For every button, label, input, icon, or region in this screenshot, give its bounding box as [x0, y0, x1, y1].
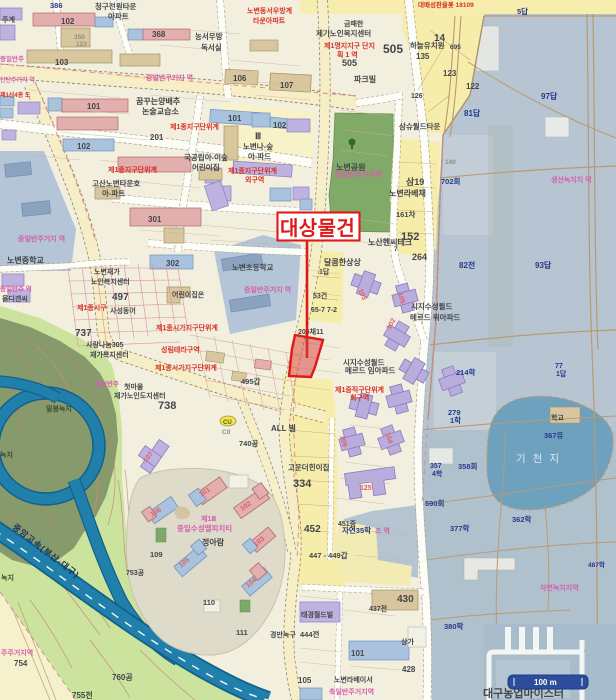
- svg-text:755전: 755전: [72, 690, 93, 700]
- svg-text:성림테라구역: 성림테라구역: [161, 345, 200, 354]
- svg-text:444전: 444전: [300, 629, 320, 639]
- svg-text:111: 111: [236, 628, 248, 637]
- svg-text:14: 14: [434, 33, 446, 44]
- svg-text:102: 102: [77, 142, 91, 151]
- svg-text:산단주거지 역: 산단주거지 역: [0, 76, 35, 84]
- svg-text:중일반주거지 역: 중일반주거지 역: [18, 234, 65, 243]
- svg-text:고산노변타운호: 고산노변타운호: [92, 178, 140, 188]
- svg-text:파크빌: 파크빌: [354, 74, 376, 84]
- svg-text:135: 135: [416, 52, 430, 61]
- svg-text:101: 101: [228, 114, 242, 123]
- svg-text:1학: 1학: [450, 415, 461, 425]
- svg-text:357: 357: [430, 463, 442, 470]
- svg-text:대상물건: 대상물건: [280, 217, 355, 240]
- svg-text:생산녹지지 역: 생산녹지지 역: [551, 175, 592, 184]
- svg-text:청구전원타운: 청구전원타운: [95, 1, 136, 11]
- svg-text:자연녹지지역: 자연녹지지역: [540, 583, 579, 592]
- svg-text:꿈꾸는양배추: 꿈꾸는양배추: [136, 96, 181, 106]
- svg-text:올디갠씨: 올디갠씨: [2, 294, 28, 303]
- svg-text:77: 77: [555, 363, 563, 370]
- svg-text:201: 201: [150, 133, 164, 142]
- svg-text:국공립아-이숲: 국공립아-이숲: [184, 152, 228, 162]
- svg-text:109: 109: [150, 550, 163, 559]
- svg-text:메르드 워아파드: 메르드 워아파드: [410, 312, 460, 322]
- svg-text:497: 497: [112, 292, 129, 303]
- svg-text:65-7 7-2: 65-7 7-2: [311, 307, 337, 314]
- svg-text:377학: 377학: [450, 523, 470, 533]
- svg-text:제1종지구단위계: 제1종지구단위계: [170, 122, 219, 131]
- svg-text:126: 126: [411, 93, 423, 100]
- svg-text:독서실: 독서실: [201, 42, 222, 52]
- svg-text:첫마을: 첫마을: [124, 382, 144, 391]
- svg-text:100 m: 100 m: [534, 678, 557, 687]
- svg-text:대배성판을롯 18109: 대배성판을롯 18109: [418, 0, 474, 9]
- svg-text:367유: 367유: [544, 431, 564, 440]
- svg-text:제1중직구단위계: 제1중직구단위계: [335, 385, 384, 394]
- svg-text:노변재가: 노변재가: [94, 267, 120, 276]
- svg-text:주계: 주계: [2, 15, 15, 24]
- svg-text:태경월드빌: 태경월드빌: [301, 610, 333, 619]
- svg-text:중일반구거지 역: 중일반구거지 역: [146, 73, 193, 82]
- svg-text:아-파트: 아-파트: [102, 188, 125, 198]
- svg-text:380학: 380학: [444, 621, 464, 631]
- svg-text:97답: 97답: [541, 91, 558, 101]
- svg-text:제1종지구단위계: 제1종지구단위계: [108, 165, 157, 174]
- svg-text:노변라베이서: 노변라베이서: [334, 675, 373, 684]
- svg-text:농서우방: 농서우방: [195, 31, 223, 41]
- svg-text:447 - 449갑: 447 - 449갑: [309, 550, 348, 560]
- svg-text:중일반주: 중일반주: [0, 54, 24, 63]
- svg-text:487학: 487학: [588, 560, 605, 569]
- svg-text:82전: 82전: [459, 260, 475, 270]
- svg-text:회구역: 회구역: [350, 393, 369, 402]
- svg-text:재가복지센터: 재가복지센터: [90, 350, 129, 359]
- svg-text:81답: 81답: [464, 108, 481, 118]
- svg-text:301: 301: [148, 215, 162, 224]
- svg-text:702회: 702회: [441, 176, 461, 186]
- svg-text:334: 334: [293, 478, 312, 490]
- svg-text:437전: 437전: [369, 604, 387, 613]
- svg-text:아파트: 아파트: [108, 11, 129, 21]
- svg-text:7: 7: [394, 246, 398, 253]
- svg-text:103: 103: [55, 58, 69, 67]
- svg-text:C0: C0: [222, 429, 231, 436]
- svg-text:제1산4종 도: 제1산4종 도: [0, 91, 31, 99]
- svg-text:430: 430: [397, 594, 414, 605]
- svg-text:아-파드: 아-파드: [248, 151, 271, 161]
- svg-text:760공: 760공: [112, 673, 133, 682]
- svg-text:161차: 161차: [396, 209, 416, 219]
- svg-text:753공: 753공: [126, 569, 145, 577]
- svg-text:녹지: 녹지: [0, 450, 13, 459]
- svg-text:350: 350: [74, 34, 85, 41]
- svg-text:중일반주거지역: 중일반주거지역: [334, 169, 382, 179]
- svg-text:495갑: 495갑: [241, 376, 261, 386]
- svg-text:사랑나눔305: 사랑나눔305: [86, 340, 124, 349]
- svg-text:53건: 53건: [313, 291, 327, 300]
- svg-text:101: 101: [351, 649, 365, 658]
- svg-text:제1종지구단위계: 제1종지구단위계: [228, 166, 277, 175]
- svg-text:105: 105: [298, 676, 312, 685]
- svg-text:5답: 5답: [517, 6, 528, 16]
- svg-text:제1종시가지구단위계: 제1종시가지구단위계: [156, 323, 218, 332]
- svg-text:삼19: 삼19: [406, 176, 424, 187]
- svg-text:590회: 590회: [425, 498, 445, 508]
- svg-text:122: 122: [466, 82, 480, 91]
- svg-text:107: 107: [280, 81, 294, 90]
- svg-text:논술교습소: 논술교습소: [142, 106, 179, 116]
- svg-text:상가: 상가: [401, 637, 414, 646]
- svg-text:123: 123: [76, 41, 87, 48]
- svg-text:시지수성윌드: 시지수성윌드: [411, 301, 452, 311]
- svg-text:110: 110: [203, 598, 215, 607]
- svg-text:학교: 학교: [551, 413, 564, 422]
- svg-text:4학: 4학: [432, 469, 443, 478]
- svg-text:1답: 1답: [319, 267, 330, 276]
- svg-text:125: 125: [360, 485, 372, 492]
- svg-text:주주거지역: 주주거지역: [1, 648, 33, 657]
- svg-text:368: 368: [152, 30, 166, 39]
- svg-text:외구역: 외구역: [245, 175, 264, 184]
- svg-text:386: 386: [50, 1, 63, 10]
- svg-text:즈 역: 즈 역: [375, 526, 390, 535]
- svg-text:타운아파트: 타운아파트: [253, 16, 286, 25]
- svg-text:101: 101: [87, 102, 101, 111]
- svg-text:노변중학교: 노변중학교: [7, 255, 44, 265]
- svg-text:제기노인복지센터: 제기노인복지센터: [316, 28, 371, 38]
- svg-text:737: 737: [75, 328, 92, 339]
- svg-text:CU: CU: [223, 420, 232, 426]
- svg-text:어린이집은: 어린이집은: [172, 290, 205, 299]
- svg-text:1답: 1답: [556, 369, 567, 378]
- svg-text:제1종시구: 제1종시구: [77, 303, 107, 312]
- svg-text:녹지: 녹지: [1, 573, 14, 582]
- svg-text:경만녹구: 경만녹구: [270, 630, 296, 639]
- svg-text:302: 302: [166, 259, 180, 268]
- svg-text:고운더힌이집: 고운더힌이집: [288, 462, 329, 472]
- svg-text:106: 106: [233, 74, 247, 83]
- svg-text:93답: 93답: [535, 260, 552, 270]
- svg-text:Ⅲ: Ⅲ: [255, 131, 261, 141]
- svg-text:금패한: 금패한: [344, 19, 364, 28]
- svg-text:어린이집: 어린이집: [192, 162, 220, 172]
- svg-text:205채11: 205채11: [298, 327, 324, 336]
- svg-text:102: 102: [61, 17, 75, 26]
- svg-text:695: 695: [450, 44, 461, 51]
- svg-text:기천지: 기천지: [516, 453, 566, 465]
- svg-text:152: 152: [401, 231, 419, 243]
- svg-text:452: 452: [304, 524, 321, 535]
- svg-text:123: 123: [443, 69, 457, 78]
- svg-text:달콤한상상: 달콤한상상: [324, 257, 361, 267]
- svg-text:중일반주거지 역: 중일반주거지 역: [244, 285, 291, 294]
- svg-text:축일반주거지역: 축일반주거지역: [329, 687, 374, 696]
- svg-text:노인복지센터: 노인복지센터: [91, 277, 130, 286]
- svg-text:제1명지지구 단지: 제1명지지구 단지: [324, 41, 375, 50]
- svg-text:노변초등학교: 노변초등학교: [232, 262, 273, 272]
- svg-text:노변라베채: 노변라베채: [389, 188, 426, 198]
- svg-text:노변동서우방계: 노변동서우방계: [247, 6, 292, 15]
- svg-text:제1Ⅲ: 제1Ⅲ: [201, 514, 216, 523]
- svg-text:제1종시가지구단위계: 제1종시가지구단위계: [155, 363, 217, 372]
- svg-text:사성동어: 사성동어: [110, 306, 136, 315]
- svg-text:중일반주: 중일반주: [95, 379, 119, 388]
- svg-text:중일반주 역: 중일반주 역: [0, 284, 32, 293]
- svg-text:214학: 214학: [456, 367, 476, 377]
- svg-text:740공: 740공: [239, 439, 259, 448]
- svg-text:ALL 빌: ALL 빌: [271, 423, 296, 433]
- svg-text:중일수성엘피치티: 중일수성엘피치티: [177, 523, 232, 533]
- svg-text:삼슈월드타운: 삼슈월드타운: [399, 121, 440, 131]
- svg-text:102: 102: [273, 121, 287, 130]
- svg-text:358회: 358회: [458, 461, 478, 471]
- svg-text:밀봉녹지: 밀봉녹지: [46, 404, 72, 413]
- svg-text:505: 505: [383, 42, 403, 56]
- svg-text:505: 505: [342, 58, 357, 68]
- svg-text:140: 140: [445, 159, 456, 166]
- svg-text:428: 428: [402, 665, 416, 674]
- svg-text:노변나-숲: 노변나-숲: [243, 141, 273, 151]
- svg-text:메르드 임아파드: 메르드 임아파드: [345, 365, 395, 375]
- svg-text:362학: 362학: [512, 514, 532, 524]
- svg-text:자연35학: 자연35학: [342, 525, 371, 535]
- svg-text:정아람: 정아람: [202, 537, 225, 547]
- svg-text:738: 738: [158, 400, 176, 412]
- svg-text:264: 264: [412, 252, 427, 262]
- svg-text:754: 754: [14, 659, 28, 668]
- svg-text:재가노인도지센터: 재가노인도지센터: [114, 391, 166, 400]
